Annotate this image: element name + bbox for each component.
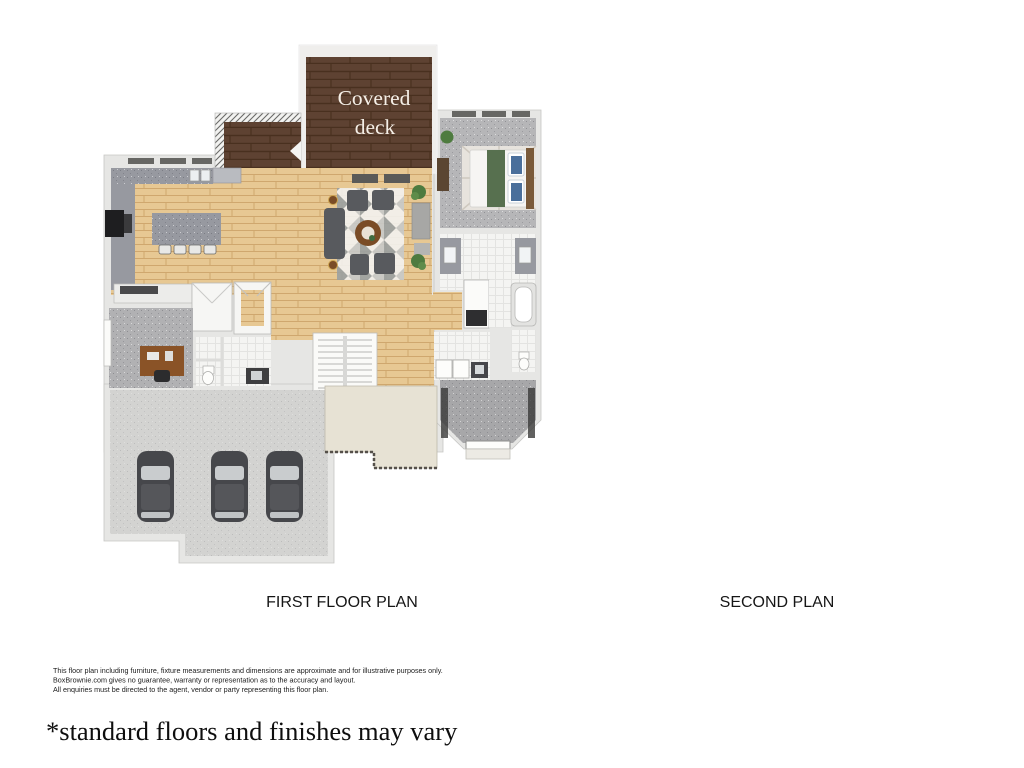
- svg-text:All enquiries must be directed: All enquiries must be directed to the ag…: [53, 685, 328, 694]
- svg-text:SECOND PLAN: SECOND PLAN: [720, 594, 835, 611]
- svg-text:FIRST FLOOR PLAN: FIRST FLOOR PLAN: [266, 594, 418, 611]
- svg-text:Covered: Covered: [338, 86, 411, 110]
- svg-text:BoxBrownie.com gives no guaran: BoxBrownie.com gives no guarantee, warra…: [53, 676, 355, 685]
- svg-text:deck: deck: [355, 115, 396, 139]
- svg-text:*standard floors and finishes: *standard floors and finishes may vary: [46, 716, 458, 746]
- svg-text:This floor plan including furn: This floor plan including furniture, fix…: [53, 666, 443, 675]
